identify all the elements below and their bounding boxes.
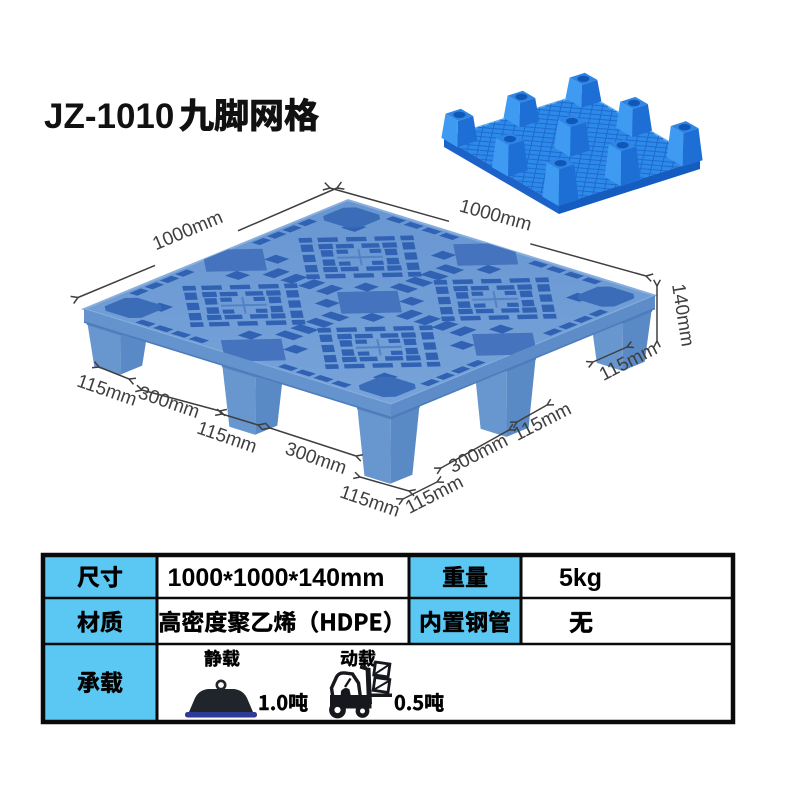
svg-text:5kg: 5kg bbox=[559, 564, 602, 592]
svg-text:JZ-1010: JZ-1010 bbox=[44, 97, 174, 136]
svg-text:1000*1000*140mm: 1000*1000*140mm bbox=[168, 564, 385, 595]
